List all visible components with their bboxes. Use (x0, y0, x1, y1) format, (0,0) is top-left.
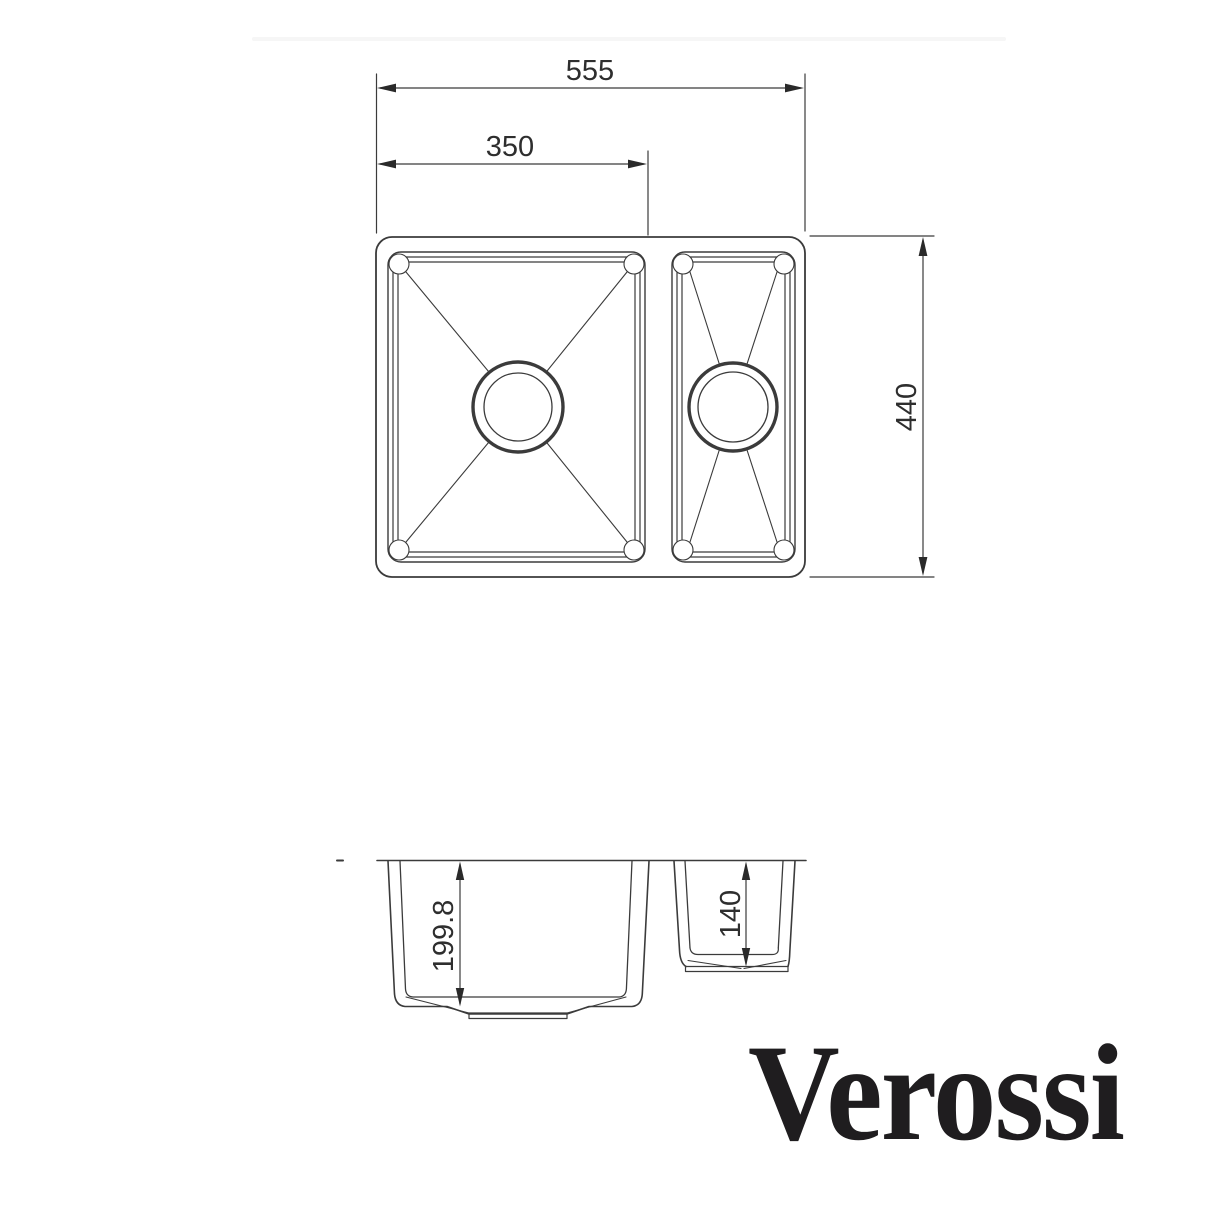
arrowhead-left (377, 160, 396, 169)
half-bowl-inner-wall-right (778, 861, 783, 948)
plan-view (376, 237, 805, 577)
dim-label-350: 350 (486, 131, 534, 163)
section-view (337, 861, 806, 1019)
main-bowl-corner-radius-br (624, 540, 644, 560)
dimension-main-bowl-width: 350 (377, 131, 648, 235)
arrowhead-bottom (919, 557, 928, 576)
main-bowl-corner-radius-bl (389, 540, 409, 560)
half-bowl-inner-wall-left (685, 861, 690, 948)
half-bowl-drain-outer (689, 363, 777, 451)
arrowhead-top (456, 862, 464, 881)
main-bowl-drain-slope-right (567, 997, 626, 1013)
dim-label-440: 440 (891, 383, 923, 431)
brand-logo-verossi: Verossi (748, 1024, 1123, 1162)
half-bowl-outer-wall-right (788, 861, 795, 967)
arrowhead-top (742, 862, 750, 881)
half-bowl-corner-radius-bl (673, 540, 693, 560)
dim-label-555: 555 (566, 55, 614, 87)
half-bowl-plan (672, 252, 795, 562)
dimension-half-bowl-depth: 140 (715, 862, 750, 967)
arrowhead-left (377, 84, 396, 93)
arrowhead-right (628, 160, 647, 169)
half-bowl-inner-bottom (690, 948, 778, 955)
half-bowl-corner-radius-br (774, 540, 794, 560)
dim-label-140: 140 (715, 890, 747, 938)
arrowhead-right (785, 84, 804, 93)
dimension-overall-width: 555 (377, 55, 806, 233)
product-drawing-page: 555 350 440 (0, 0, 1214, 1214)
half-bowl-corner-radius-tl (673, 254, 693, 274)
main-bowl-plan (388, 252, 645, 562)
arrowhead-top (919, 237, 928, 256)
main-bowl-corner-radius-tr (624, 254, 644, 274)
half-bowl-outer-wall-left (674, 861, 686, 967)
main-bowl-drain-outer (473, 362, 563, 452)
dimension-overall-depth: 440 (810, 236, 934, 577)
main-bowl-corner-radius-tl (389, 254, 409, 274)
half-bowl-drain-flange (686, 967, 789, 972)
dim-label-199-8: 199.8 (428, 900, 460, 973)
half-bowl-dish-line-left (688, 961, 741, 969)
dimension-main-bowl-depth: 199.8 (428, 862, 464, 1007)
half-bowl-corner-radius-tr (774, 254, 794, 274)
half-bowl-dish-line-right (744, 961, 786, 969)
arrowhead-bottom (742, 948, 750, 967)
